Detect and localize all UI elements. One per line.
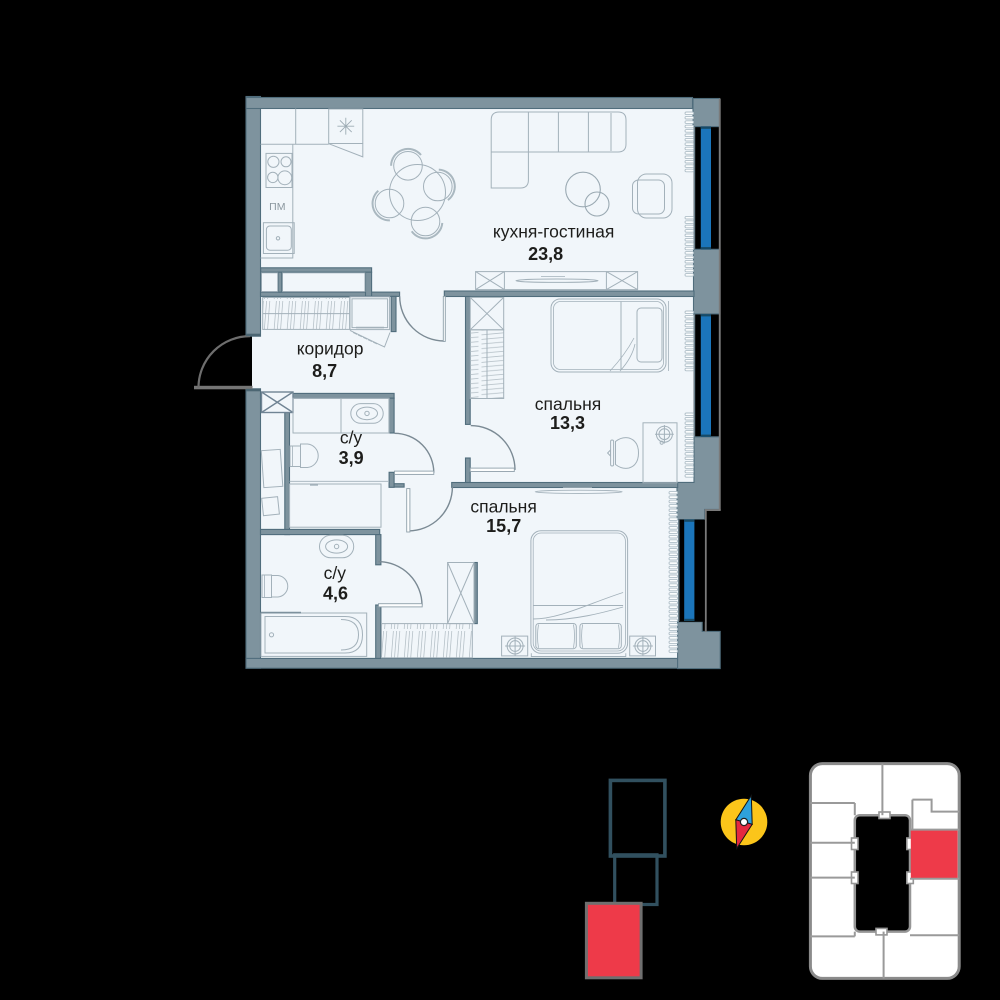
- svg-text:ПМ: ПМ: [269, 201, 285, 213]
- svg-text:8,7: 8,7: [312, 361, 337, 381]
- svg-text:спальня: спальня: [470, 497, 536, 517]
- svg-text:3,9: 3,9: [339, 448, 364, 468]
- svg-text:с/у: с/у: [324, 563, 347, 583]
- svg-text:13,3: 13,3: [550, 413, 585, 433]
- svg-text:4,6: 4,6: [323, 584, 348, 604]
- svg-text:спальня: спальня: [535, 394, 601, 414]
- svg-text:коридор: коридор: [297, 339, 364, 359]
- svg-text:кухня-гостиная: кухня-гостиная: [493, 221, 614, 241]
- svg-text:15,7: 15,7: [486, 516, 521, 536]
- svg-text:с/у: с/у: [340, 428, 363, 448]
- svg-text:23,8: 23,8: [528, 244, 563, 264]
